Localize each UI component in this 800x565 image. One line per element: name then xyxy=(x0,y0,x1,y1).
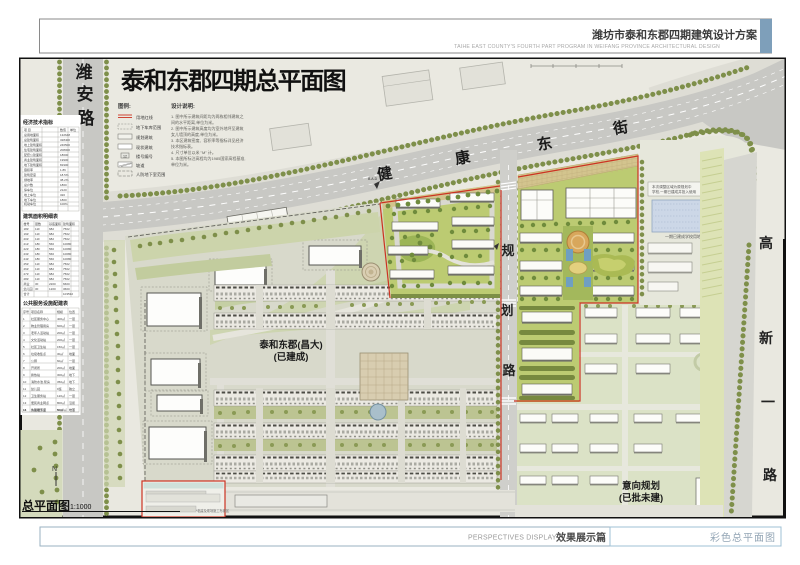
svg-text:公厕: 公厕 xyxy=(31,359,37,363)
svg-text:序号: 序号 xyxy=(23,309,29,314)
svg-text:间的水平距离,单位为米。: 间的水平距离,单位为米。 xyxy=(171,119,216,125)
svg-text:现状建筑: 现状建筑 xyxy=(136,144,154,151)
svg-text:7502: 7502 xyxy=(63,277,70,281)
svg-text:2200: 2200 xyxy=(49,282,56,286)
svg-text:11F: 11F xyxy=(35,262,40,266)
svg-text:数值: 数值 xyxy=(60,127,66,132)
svg-text:绿地率: 绿地率 xyxy=(24,177,33,182)
svg-text:地下: 地下 xyxy=(69,407,75,412)
svg-text:总户数: 总户数 xyxy=(24,182,33,187)
svg-text:项目名称: 项目名称 xyxy=(31,309,43,314)
svg-text:7502: 7502 xyxy=(63,272,70,276)
svg-text:垃圾收集点: 垃圾收集点 xyxy=(31,351,46,356)
svg-text:规: 规 xyxy=(501,243,514,258)
svg-text:路: 路 xyxy=(502,363,516,378)
svg-text:楼号: 楼号 xyxy=(24,221,30,226)
svg-text:3600: 3600 xyxy=(63,287,70,291)
svg-text:7502: 7502 xyxy=(63,232,70,236)
svg-text:TAIHE EAST COUNTY'S FOURTH PAR: TAIHE EAST COUNTY'S FOURTH PART PROGRAM … xyxy=(454,44,720,50)
svg-text:22#: 22# xyxy=(24,247,29,251)
svg-text:一层: 一层 xyxy=(69,344,75,349)
svg-text:18600: 18600 xyxy=(60,153,69,157)
svg-text:682: 682 xyxy=(49,267,54,271)
svg-text:基底面积: 基底面积 xyxy=(49,221,61,226)
svg-text:120㎡: 120㎡ xyxy=(57,393,65,398)
svg-text:泰和东郡(昌大): 泰和东郡(昌大) xyxy=(258,339,322,351)
svg-text:便民商业网点: 便民商业网点 xyxy=(31,400,49,405)
svg-text:建筑密度: 建筑密度 xyxy=(24,172,36,177)
svg-text:560: 560 xyxy=(49,247,54,251)
svg-text:项 目: 项 目 xyxy=(24,128,31,132)
svg-text:3F: 3F xyxy=(35,282,39,286)
svg-text:B.A.D: B.A.D xyxy=(368,177,378,181)
svg-text:2. 图中所示建筑高度均为室外地坪至建筑: 2. 图中所示建筑高度均为室外地坪至建筑 xyxy=(171,125,243,131)
svg-text:设计说明:: 设计说明: xyxy=(171,102,195,110)
svg-text:200㎡: 200㎡ xyxy=(57,337,65,342)
svg-text:独立: 独立 xyxy=(69,386,75,391)
svg-text:机动车位: 机动车位 xyxy=(24,201,36,206)
svg-text:人防地下室: 人防地下室 xyxy=(31,407,46,412)
svg-text:11F: 11F xyxy=(35,227,40,231)
svg-text:女儿墙顶的高度,单位为米。: 女儿墙顶的高度,单位为米。 xyxy=(171,131,220,137)
svg-text:18F: 18F xyxy=(35,252,40,256)
svg-text:682: 682 xyxy=(49,232,54,236)
svg-text:潍坊市泰和东郡四期建筑设计方案: 潍坊市泰和东郡四期建筑设计方案 xyxy=(592,28,758,42)
svg-text:20#: 20# xyxy=(24,237,29,241)
svg-text:街: 街 xyxy=(611,118,630,139)
svg-text:住宅建筑面积: 住宅建筑面积 xyxy=(24,147,42,152)
svg-text:18F: 18F xyxy=(35,257,40,261)
svg-text:320: 320 xyxy=(60,193,65,197)
svg-text:38.2%: 38.2% xyxy=(60,178,69,182)
svg-text:3F: 3F xyxy=(35,287,39,291)
svg-text:经济技术指标: 经济技术指标 xyxy=(23,119,53,126)
svg-text:一: 一 xyxy=(761,394,775,410)
svg-text:潍: 潍 xyxy=(76,62,93,82)
svg-text:地下: 地下 xyxy=(69,372,75,377)
svg-text:规划建筑: 规划建筑 xyxy=(136,134,154,141)
svg-text:文化活动站: 文化活动站 xyxy=(31,337,46,342)
svg-text:1. 图中所示建筑间距均为两栋相邻建筑之: 1. 图中所示建筑间距均为两栋相邻建筑之 xyxy=(171,113,243,119)
svg-text:10080: 10080 xyxy=(63,247,72,251)
svg-text:328400: 328400 xyxy=(60,138,70,142)
svg-text:楼号编号: 楼号编号 xyxy=(136,153,153,160)
svg-text:10080: 10080 xyxy=(63,242,72,246)
svg-text:11F: 11F xyxy=(35,267,40,271)
svg-text:200㎡: 200㎡ xyxy=(57,365,65,370)
svg-text:配套公建面积: 配套公建面积 xyxy=(24,152,42,157)
svg-text:合计: 合计 xyxy=(24,291,30,296)
svg-text:18#: 18# xyxy=(24,227,29,231)
svg-text:公共服务设施配建表: 公共服务设施配建表 xyxy=(23,300,69,307)
svg-text:物业管理用房: 物业管理用房 xyxy=(31,323,49,328)
svg-text:意向规划: 意向规划 xyxy=(622,480,660,492)
svg-text:单位: 单位 xyxy=(70,127,76,132)
svg-text:路: 路 xyxy=(763,467,778,483)
svg-text:682: 682 xyxy=(49,277,54,281)
svg-text:层数: 层数 xyxy=(35,221,41,226)
svg-text:200㎡: 200㎡ xyxy=(57,330,65,335)
svg-text:坡道: 坡道 xyxy=(136,162,145,169)
svg-text:建筑面积明细表: 建筑面积明细表 xyxy=(22,213,59,220)
svg-text:商业建筑面积: 商业建筑面积 xyxy=(24,157,42,162)
svg-text:6600: 6600 xyxy=(63,282,70,286)
svg-text:*临建及现场施工布置区: *临建及现场施工布置区 xyxy=(196,508,230,513)
svg-text:25#: 25# xyxy=(24,262,29,266)
svg-text:682: 682 xyxy=(49,227,54,231)
svg-text:地下车库范围: 地下车库范围 xyxy=(136,124,161,131)
svg-text:682: 682 xyxy=(49,237,54,241)
svg-text:10: 10 xyxy=(23,380,27,384)
svg-text:图例:: 图例: xyxy=(118,102,131,110)
svg-text:682: 682 xyxy=(49,272,54,276)
svg-text:地下建筑面积: 地下建筑面积 xyxy=(24,162,42,167)
svg-text:社区卫生站: 社区卫生站 xyxy=(31,344,46,349)
svg-text:11F: 11F xyxy=(35,237,40,241)
svg-text:容积率: 容积率 xyxy=(24,167,33,172)
svg-text:560: 560 xyxy=(49,252,54,256)
svg-text:24#: 24# xyxy=(24,257,29,261)
svg-text:社区服务中心: 社区服务中心 xyxy=(31,316,49,321)
svg-text:总平面图: 总平面图 xyxy=(22,498,70,513)
svg-text:350㎡: 350㎡ xyxy=(57,379,65,384)
svg-text:建筑面积: 建筑面积 xyxy=(63,221,75,226)
svg-text:东: 东 xyxy=(536,134,554,154)
svg-text:19900: 19900 xyxy=(60,158,69,162)
svg-text:2120: 2120 xyxy=(60,188,67,192)
svg-text:消防水池,泵房: 消防水池,泵房 xyxy=(31,379,50,384)
svg-text:19#: 19# xyxy=(24,232,29,236)
svg-text:400㎡: 400㎡ xyxy=(57,316,65,321)
svg-text:208000: 208000 xyxy=(60,148,70,152)
svg-text:总用地面积: 总用地面积 xyxy=(24,132,39,137)
svg-text:泰和东郡四期总平面图: 泰和东郡四期总平面图 xyxy=(121,67,346,95)
svg-text:1860: 1860 xyxy=(60,183,67,187)
svg-text:总建筑面积: 总建筑面积 xyxy=(24,137,39,142)
svg-text:12: 12 xyxy=(123,155,127,159)
svg-text:用地红线: 用地红线 xyxy=(136,114,154,121)
svg-text:地面: 地面 xyxy=(69,365,75,370)
svg-text:560: 560 xyxy=(49,242,54,246)
svg-text:15: 15 xyxy=(23,408,27,412)
svg-text:人防地下室范围: 人防地下室范围 xyxy=(136,171,165,178)
svg-text:商业: 商业 xyxy=(24,281,30,286)
svg-text:一层: 一层 xyxy=(69,358,75,363)
svg-text:规模: 规模 xyxy=(57,309,63,314)
svg-text:7502: 7502 xyxy=(63,237,70,241)
svg-text:N: N xyxy=(52,466,57,473)
svg-text:3. 本区建筑密度、容积率等指标详见经济: 3. 本区建筑密度、容积率等指标详见经济 xyxy=(171,137,243,143)
svg-text:单位为米。: 单位为米。 xyxy=(171,161,191,167)
svg-text:7502: 7502 xyxy=(63,262,70,266)
svg-text:600㎡: 600㎡ xyxy=(57,323,65,328)
svg-text:地下: 地下 xyxy=(69,379,75,384)
svg-text:幼儿园: 幼儿园 xyxy=(24,286,33,291)
svg-text:地上车位: 地上车位 xyxy=(24,192,36,197)
svg-text:300㎡: 300㎡ xyxy=(57,372,65,377)
svg-text:学校,一期已建成并投入使用: 学校,一期已建成并投入使用 xyxy=(652,189,697,194)
svg-text:一层: 一层 xyxy=(69,393,75,398)
svg-text:技术指标表。: 技术指标表。 xyxy=(171,143,195,149)
svg-text:28#: 28# xyxy=(24,277,29,281)
svg-text:682: 682 xyxy=(49,262,54,266)
svg-text:4. 尺寸单位以米 "M" 计。: 4. 尺寸单位以米 "M" 计。 xyxy=(171,149,216,155)
svg-text:13: 13 xyxy=(23,401,27,405)
svg-text:7502: 7502 xyxy=(63,267,70,271)
svg-text:7502: 7502 xyxy=(63,227,70,231)
svg-text:81900: 81900 xyxy=(60,163,69,167)
svg-text:(已建成): (已建成) xyxy=(274,351,309,363)
svg-text:23#: 23# xyxy=(24,252,29,256)
svg-text:100%: 100% xyxy=(60,202,68,206)
svg-text:10080: 10080 xyxy=(63,252,72,256)
svg-text:位置: 位置 xyxy=(69,309,75,314)
svg-text:150㎡: 150㎡ xyxy=(57,344,65,349)
svg-text:PERSPECTIVES DISPLAY: PERSPECTIVES DISPLAY xyxy=(468,535,557,542)
svg-text:新: 新 xyxy=(759,330,773,346)
svg-text:地面: 地面 xyxy=(69,351,75,356)
svg-text:开闭所: 开闭所 xyxy=(31,365,40,370)
svg-text:一层: 一层 xyxy=(69,323,75,328)
svg-text:9班: 9班 xyxy=(57,386,62,391)
svg-text:18.5%: 18.5% xyxy=(60,173,69,177)
svg-text:26#: 26# xyxy=(24,267,29,271)
svg-text:27#: 27# xyxy=(24,272,29,276)
svg-text:11F: 11F xyxy=(35,272,40,276)
svg-text:幼儿园: 幼儿园 xyxy=(31,386,40,391)
svg-text:卫生服务站: 卫生服务站 xyxy=(31,393,46,398)
svg-text:效果展示篇: 效果展示篇 xyxy=(556,531,606,544)
svg-text:60㎡: 60㎡ xyxy=(57,358,63,363)
svg-text:5. 本图所标注高程均为1985国家高程基准,: 5. 本图所标注高程均为1985国家高程基准, xyxy=(171,155,245,161)
svg-text:246500: 246500 xyxy=(60,143,70,147)
svg-text:11: 11 xyxy=(23,387,26,391)
svg-text:本次调整区域为原规划中: 本次调整区域为原规划中 xyxy=(652,184,692,189)
svg-text:沿街: 沿街 xyxy=(69,400,75,405)
svg-text:800㎡: 800㎡ xyxy=(57,400,65,405)
svg-text:11F: 11F xyxy=(35,232,40,236)
svg-text:高: 高 xyxy=(759,235,773,251)
svg-text:地上建筑面积: 地上建筑面积 xyxy=(24,142,42,147)
svg-text:停车位: 停车位 xyxy=(24,187,33,192)
svg-text:彩色总平面图: 彩色总平面图 xyxy=(710,531,776,544)
svg-text:一层: 一层 xyxy=(69,337,75,342)
svg-text:1200: 1200 xyxy=(49,287,56,291)
svg-text:老年人活动站: 老年人活动站 xyxy=(31,330,49,335)
svg-text:103532: 103532 xyxy=(63,292,73,296)
svg-text:21#: 21# xyxy=(24,242,29,246)
svg-text:6000㎡: 6000㎡ xyxy=(57,407,67,412)
svg-text:划: 划 xyxy=(500,303,513,318)
svg-text:1:1000: 1:1000 xyxy=(70,504,92,511)
svg-text:一层: 一层 xyxy=(69,316,75,321)
svg-text:18F: 18F xyxy=(35,242,40,246)
svg-text:(已批未建): (已批未建) xyxy=(619,492,663,504)
svg-text:18F: 18F xyxy=(35,247,40,251)
svg-text:换热站: 换热站 xyxy=(31,372,40,377)
svg-text:安: 安 xyxy=(77,84,94,104)
svg-text:10080: 10080 xyxy=(63,257,72,261)
svg-text:30㎡: 30㎡ xyxy=(57,351,63,356)
svg-text:健: 健 xyxy=(376,164,394,184)
svg-text:一期已建成学校用地: 一期已建成学校用地 xyxy=(665,233,701,239)
svg-text:132648: 132648 xyxy=(60,133,70,137)
svg-text:12: 12 xyxy=(23,394,27,398)
svg-text:1.86: 1.86 xyxy=(60,168,66,172)
svg-text:560: 560 xyxy=(49,257,54,261)
svg-text:一层: 一层 xyxy=(69,330,75,335)
svg-text:11F: 11F xyxy=(35,277,40,281)
